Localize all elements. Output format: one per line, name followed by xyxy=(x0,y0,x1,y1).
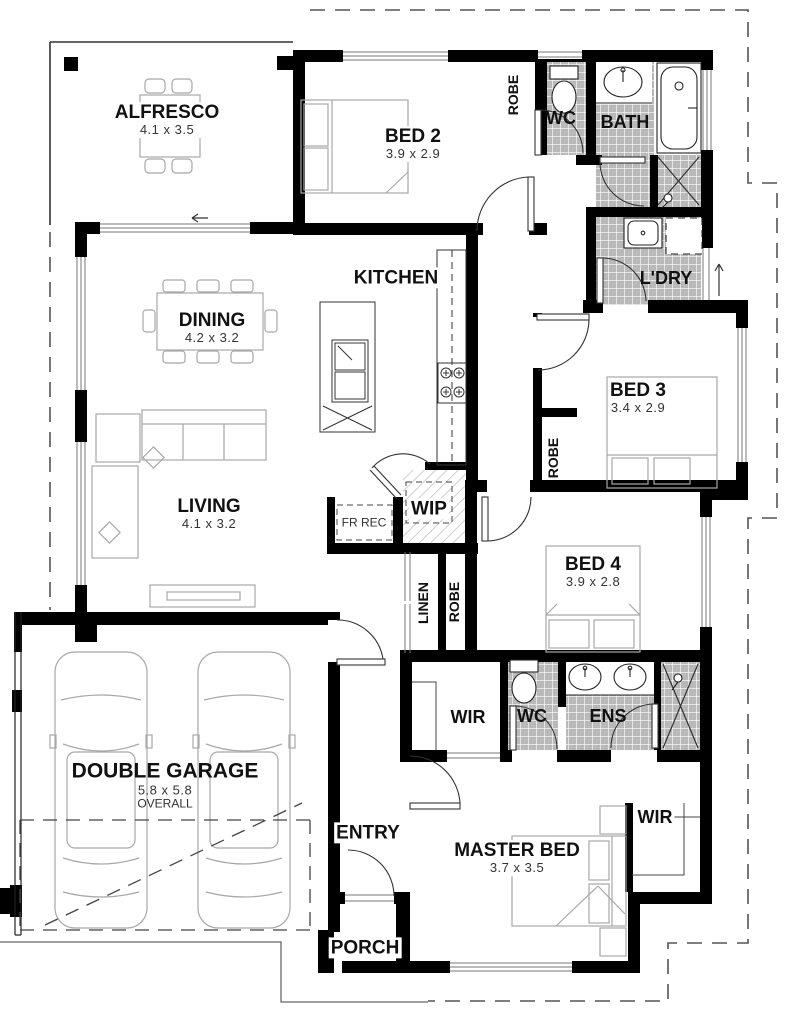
room-note: OVERALL xyxy=(72,797,259,810)
bed4-door xyxy=(482,497,531,541)
room-name: DINING xyxy=(179,310,246,331)
room-label-ens: ENS xyxy=(587,706,628,726)
room-label-dining: DINING 4.2 x 3.2 xyxy=(177,310,248,346)
room-label-bed3: BED 3 3.4 x 2.9 xyxy=(608,380,668,416)
toilet xyxy=(550,66,578,113)
bed2-door xyxy=(477,177,534,231)
room-label-robe-bed2: ROBE xyxy=(506,74,522,116)
room-label-kitchen: KITCHEN xyxy=(352,267,440,288)
laundry-trough xyxy=(624,218,662,248)
room-name: LIVING xyxy=(177,496,240,517)
room-label-linen: LINEN xyxy=(416,581,432,625)
room-dims: 3.4 x 2.9 xyxy=(610,401,666,416)
alfresco-post xyxy=(64,57,78,71)
room-label-wc-ens: WC xyxy=(515,706,549,726)
room-label-wir-hall: WIR xyxy=(449,707,488,727)
room-label-living: LIVING 4.1 x 3.2 xyxy=(175,496,242,532)
bathtub xyxy=(657,63,701,153)
garage-internal-door xyxy=(337,620,385,665)
floor-plan: ALFRESCO 4.1 x 3.5 BED 2 3.9 x 2.9 ROBE … xyxy=(0,0,812,1028)
room-label-laundry: L'DRY xyxy=(638,268,695,288)
room-label-bed4: BED 4 3.9 x 2.8 xyxy=(563,554,623,590)
room-name: ALFRESCO xyxy=(115,102,220,123)
room-name: DOUBLE GARAGE xyxy=(72,759,259,783)
room-label-robe-bed3: ROBE xyxy=(546,437,562,479)
master-bed-furniture xyxy=(512,806,626,956)
tv-unit xyxy=(150,585,255,607)
room-label-wc: WC xyxy=(544,108,578,128)
room-dims: 3.7 x 3.5 xyxy=(454,861,580,876)
room-label-bed2: BED 2 3.9 x 2.9 xyxy=(383,126,443,162)
slider-arrow-icon xyxy=(192,214,208,222)
front-door xyxy=(348,850,394,896)
room-label-fr-rec: FR REC xyxy=(340,516,389,529)
wall-nib xyxy=(277,56,293,70)
master-door xyxy=(410,756,460,809)
island-bench xyxy=(320,302,375,432)
room-label-wir-master: WIR xyxy=(636,807,675,827)
laundry-door-arrow-icon xyxy=(715,264,723,296)
bed3-door xyxy=(537,314,589,370)
garage-setout xyxy=(20,803,310,930)
room-dims: 3.9 x 2.8 xyxy=(565,575,621,590)
ens-toilet xyxy=(510,660,538,703)
room-label-porch: PORCH xyxy=(329,937,402,958)
room-dims: 4.1 x 3.5 xyxy=(115,123,220,138)
sofa xyxy=(92,410,266,558)
room-label-entry: ENTRY xyxy=(334,822,402,843)
room-name: BED 2 xyxy=(385,126,441,147)
room-name: MASTER BED xyxy=(454,840,580,861)
room-dims: 4.1 x 3.2 xyxy=(177,517,240,532)
room-label-master: MASTER BED 3.7 x 3.5 xyxy=(452,840,582,876)
room-label-alfresco: ALFRESCO 4.1 x 3.5 xyxy=(113,102,222,138)
room-label-wip: WIP xyxy=(409,498,449,519)
appliance-space xyxy=(666,218,702,254)
room-dims: 3.9 x 2.9 xyxy=(385,147,441,162)
room-dims: 4.2 x 3.2 xyxy=(179,331,246,346)
room-label-bath: BATH xyxy=(599,112,652,132)
room-label-garage: DOUBLE GARAGE 5.8 x 5.8 OVERALL xyxy=(70,759,261,811)
room-name: BED 3 xyxy=(610,380,666,401)
room-dims: 5.8 x 5.8 xyxy=(72,783,259,798)
room-label-robe-hall: ROBE xyxy=(447,581,463,623)
room-name: BED 4 xyxy=(565,554,621,575)
kitchen-sink xyxy=(332,340,368,402)
